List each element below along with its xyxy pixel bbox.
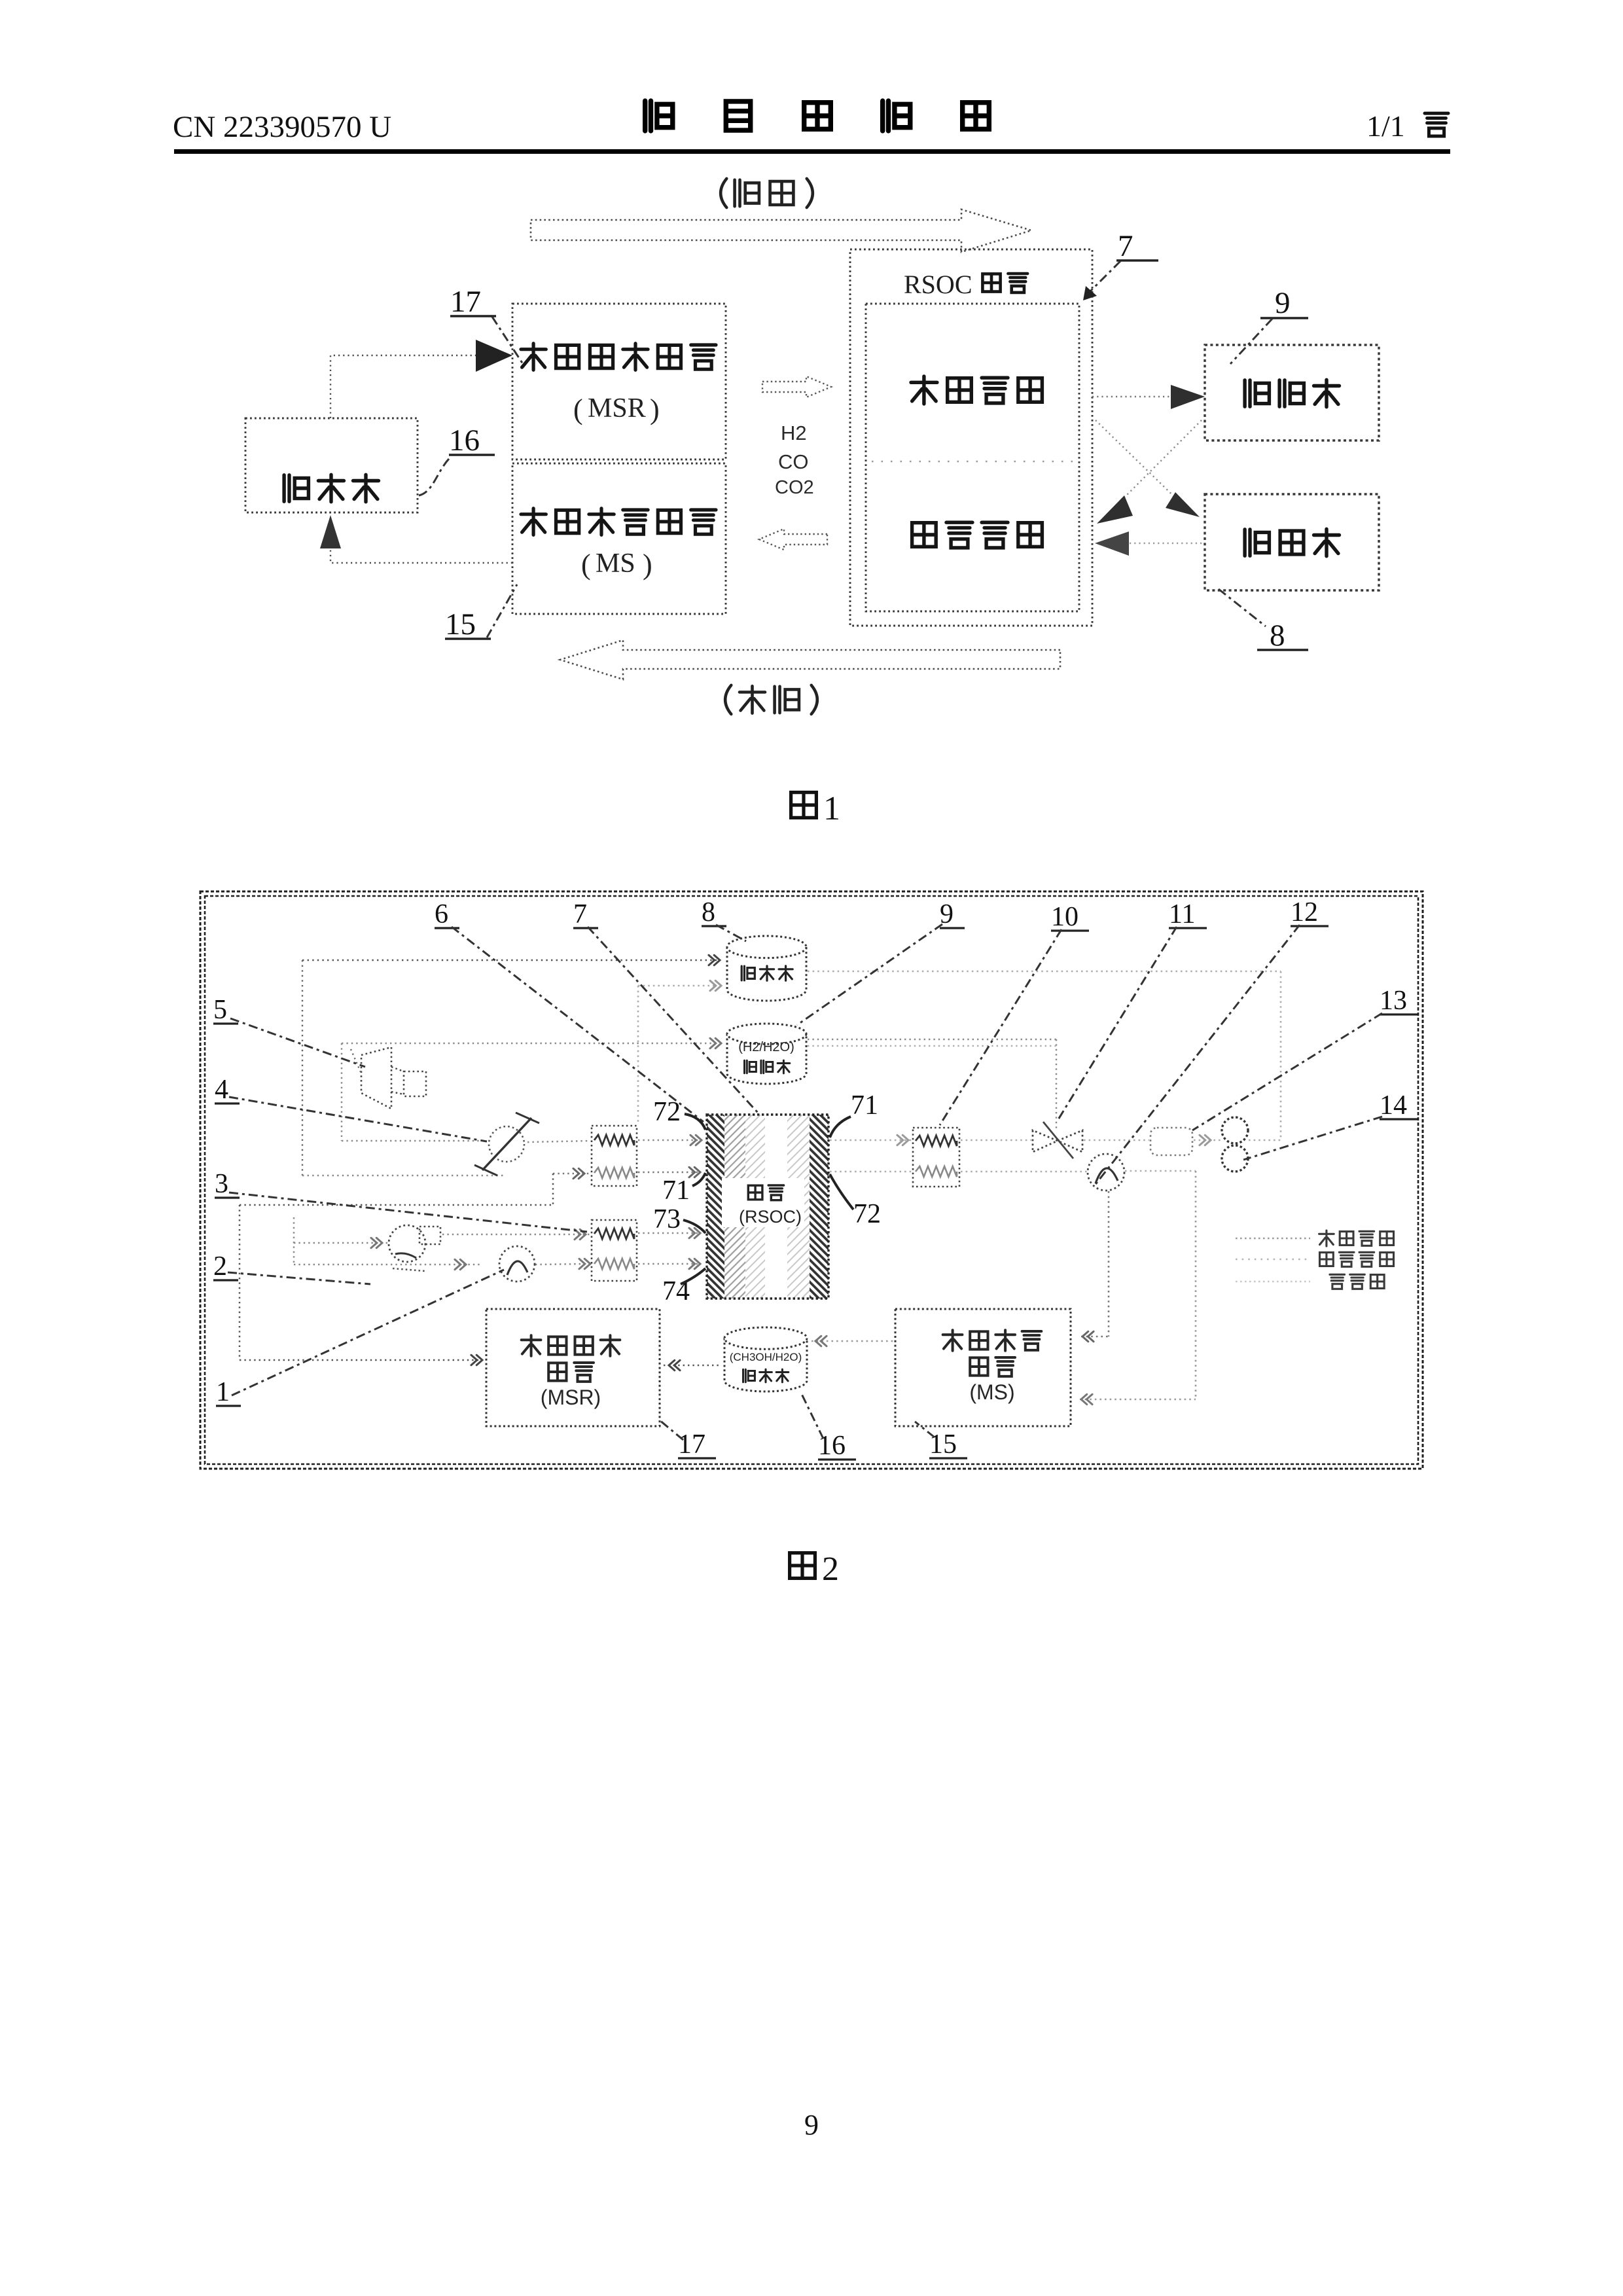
svg-text:71: 71 <box>851 1090 878 1121</box>
svg-text:15: 15 <box>445 607 476 641</box>
svg-text:17: 17 <box>678 1429 705 1460</box>
svg-text:13: 13 <box>1380 986 1407 1016</box>
svg-text:): ) <box>643 548 652 581</box>
svg-text:H2: H2 <box>781 422 807 444</box>
svg-text:73: 73 <box>653 1204 681 1234</box>
svg-text:15: 15 <box>929 1429 957 1460</box>
svg-text:CN 223390570 U: CN 223390570 U <box>173 110 391 144</box>
svg-text:(: ( <box>573 393 583 425</box>
svg-text:8: 8 <box>702 897 715 927</box>
svg-text:(CH3OH/H2O): (CH3OH/H2O) <box>730 1351 802 1363</box>
svg-text:16: 16 <box>449 423 480 457</box>
svg-text:(H2/H2O): (H2/H2O) <box>738 1040 794 1054</box>
svg-text:(MSR): (MSR) <box>541 1386 601 1409</box>
svg-text:1/1: 1/1 <box>1366 109 1405 143</box>
svg-text:12: 12 <box>1291 897 1318 927</box>
svg-text:(: ( <box>581 548 591 581</box>
svg-text:4: 4 <box>215 1075 228 1105</box>
svg-text:): ) <box>650 393 660 425</box>
svg-text:1: 1 <box>823 790 840 827</box>
svg-text:72: 72 <box>853 1199 881 1229</box>
svg-text:CO2: CO2 <box>775 477 814 498</box>
svg-text:2: 2 <box>213 1251 227 1282</box>
svg-text:MSR: MSR <box>588 393 646 423</box>
svg-text:71: 71 <box>662 1175 690 1206</box>
svg-text:72: 72 <box>653 1097 681 1127</box>
svg-text:9: 9 <box>804 2109 819 2141</box>
svg-text:7: 7 <box>573 899 587 929</box>
svg-text:6: 6 <box>435 899 448 929</box>
svg-text:10: 10 <box>1051 902 1079 932</box>
svg-text:1: 1 <box>216 1377 230 1407</box>
svg-text:RSOC: RSOC <box>904 270 972 299</box>
svg-text:14: 14 <box>1380 1090 1407 1121</box>
svg-text:(RSOC): (RSOC) <box>739 1207 802 1227</box>
svg-text:MS: MS <box>596 548 635 579</box>
svg-text:11: 11 <box>1169 899 1195 929</box>
svg-text:3: 3 <box>215 1169 228 1199</box>
svg-text:7: 7 <box>1118 229 1133 263</box>
svg-text:2: 2 <box>822 1551 839 1588</box>
svg-text:CO: CO <box>778 450 809 473</box>
svg-text:17: 17 <box>450 285 481 319</box>
svg-text:(MS): (MS) <box>969 1380 1014 1404</box>
svg-text:9: 9 <box>1275 286 1291 320</box>
svg-text:8: 8 <box>1270 619 1285 653</box>
svg-text:5: 5 <box>213 995 227 1025</box>
